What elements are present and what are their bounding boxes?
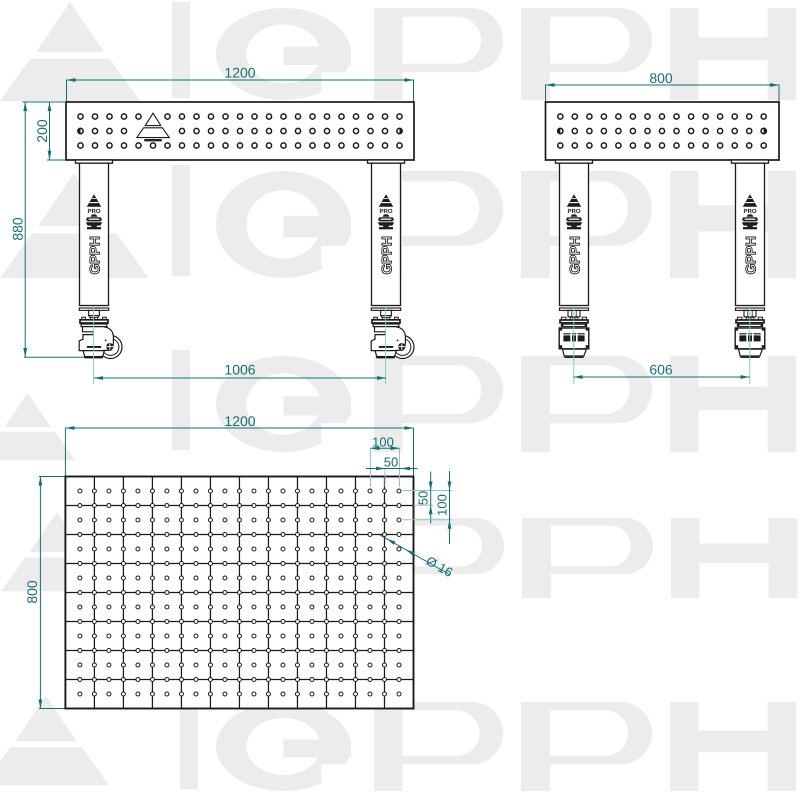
svg-text:880: 880 [10,217,26,241]
svg-text:50: 50 [416,491,431,505]
svg-text:1200: 1200 [224,413,255,429]
svg-text:PRO: PRO [743,208,756,215]
svg-text:800: 800 [24,580,40,604]
svg-text:1006: 1006 [224,362,255,378]
svg-text:100: 100 [435,494,450,516]
svg-text:100: 100 [372,434,394,449]
svg-text:606: 606 [649,362,673,378]
svg-text:200: 200 [34,119,50,143]
svg-text:800: 800 [649,70,673,86]
svg-text:GPPH: GPPH [86,236,102,274]
svg-text:50: 50 [384,455,398,470]
svg-text:PRO: PRO [379,208,392,215]
svg-text:GPPH: GPPH [378,236,394,274]
svg-text:GPPH: GPPH [742,236,758,274]
svg-text:GPPH: GPPH [566,236,582,274]
svg-text:1200: 1200 [224,65,255,81]
svg-text:PRO: PRO [87,208,100,215]
svg-text:PRO: PRO [567,208,580,215]
